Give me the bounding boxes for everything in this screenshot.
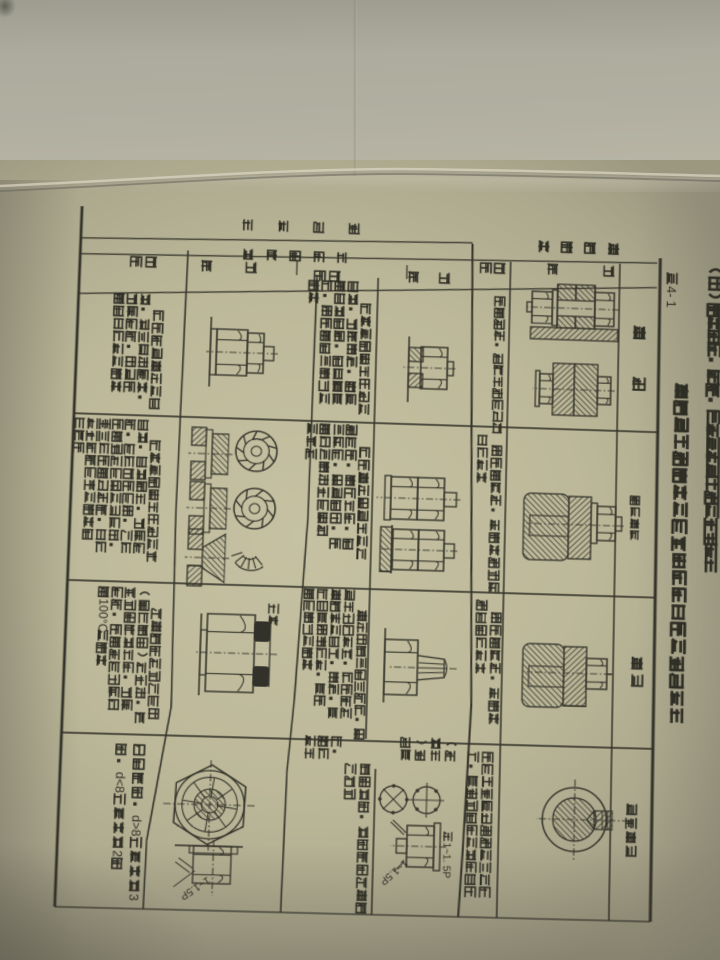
svg-text:8: 8 [112,786,127,794]
svg-text:3: 3 [126,894,141,902]
svg-text:2: 2 [110,850,125,858]
svg-text:8: 8 [128,829,143,837]
svg-text:1: 1 [663,300,678,308]
svg-text:P: P [440,871,452,879]
svg-text:1~1.5P: 1~1.5P [377,857,410,887]
svg-text:-: - [664,293,679,298]
svg-text:°C: °C [95,619,109,633]
svg-text:1~1.5P: 1~1.5P [177,874,212,902]
svg-text:.: . [440,860,452,863]
